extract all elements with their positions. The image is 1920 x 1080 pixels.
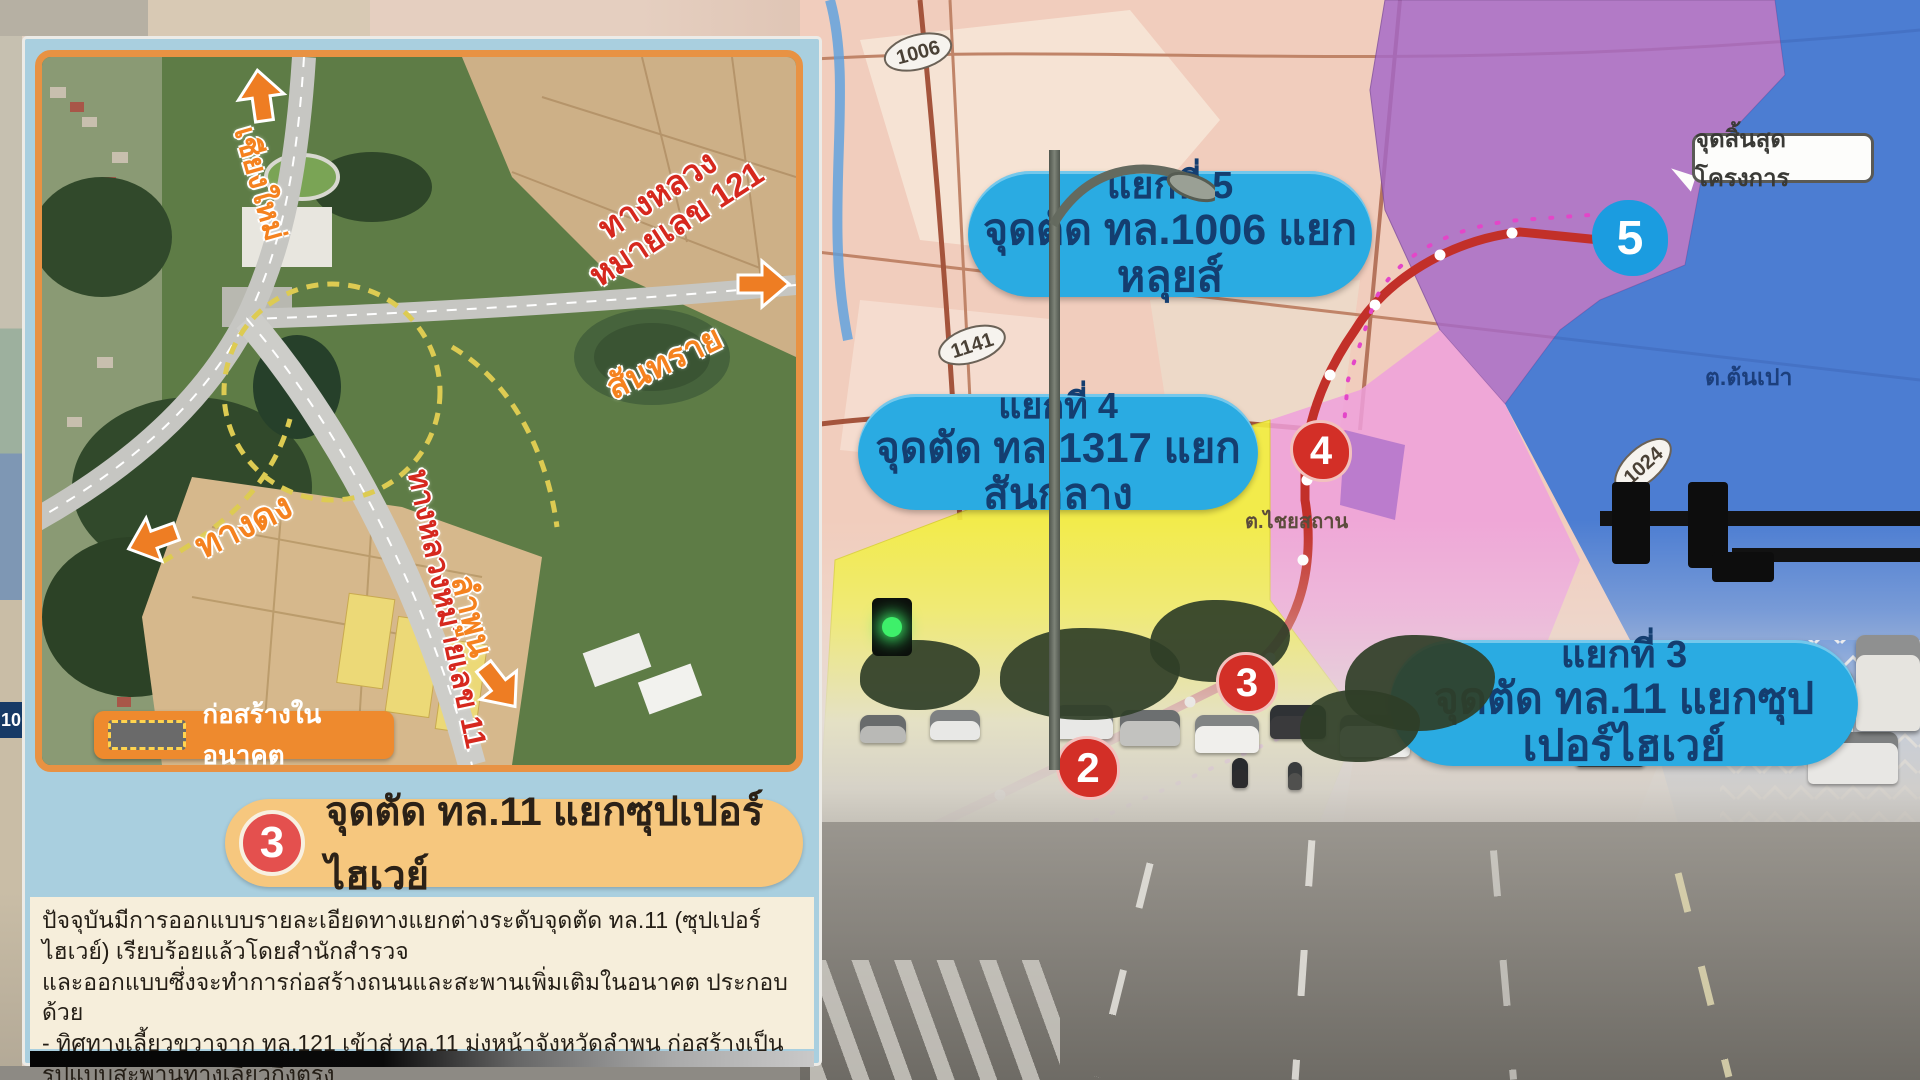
screenshot-root: 1006 1141 1024 ต.ต้นเปา ต.ไชยสถาน bbox=[0, 0, 1920, 1080]
marker-junction-4: 4 bbox=[1290, 420, 1352, 482]
project-inset-panel: เชียงใหม่ ทางหลวง หมายเลข 121 สันทราย ทา… bbox=[22, 36, 822, 1066]
description-line: และออกแบบซึ่งจะทำการก่อสร้างถนนและสะพานเ… bbox=[42, 967, 802, 1029]
arrow-up-chiangmai-icon bbox=[230, 64, 292, 129]
traffic-signal-head bbox=[1712, 552, 1774, 582]
crosswalk-stripes bbox=[810, 960, 1060, 1080]
aerial-interchange-photo: เชียงใหม่ ทางหลวง หมายเลข 121 สันทราย ทา… bbox=[35, 50, 803, 772]
callout-3-line1: แยกที่ 3 bbox=[1561, 636, 1688, 676]
arrow-right-sansai-icon bbox=[734, 257, 792, 311]
green-lamp-icon bbox=[882, 617, 902, 637]
legend-dashed-swatch-icon bbox=[108, 720, 186, 750]
traffic-photo bbox=[800, 520, 1920, 1080]
description-line: ปัจจุบันมีการออกแบบรายละเอียดทางแยกต่างร… bbox=[42, 905, 802, 967]
street-light-arm bbox=[1045, 140, 1215, 240]
project-end-label: จุดสิ้นสุดโครงการ bbox=[1692, 133, 1874, 183]
background-map-top-strip bbox=[0, 0, 822, 36]
marker-junction-2: 2 bbox=[1056, 736, 1120, 800]
motorbike bbox=[1232, 758, 1248, 788]
panel-bottom-bar bbox=[30, 1051, 814, 1067]
junction-number-badge: 3 bbox=[239, 810, 305, 876]
marker-junction-5: 5 bbox=[1592, 200, 1668, 276]
traffic-signal-head bbox=[1612, 482, 1650, 564]
junction-title: 3 จุดตัด ทล.11 แยกซุปเปอร์ไฮเวย์ bbox=[225, 799, 803, 887]
marker-junction-3: 3 bbox=[1216, 652, 1278, 714]
area-label-tonpao: ต.ต้นเปา bbox=[1705, 364, 1792, 390]
car bbox=[1120, 710, 1180, 746]
background-map-left-strip bbox=[0, 36, 22, 1080]
street-light-pole bbox=[1049, 150, 1060, 770]
traffic-signal-green bbox=[872, 598, 912, 656]
truck bbox=[1856, 635, 1920, 731]
car bbox=[1195, 715, 1259, 753]
edge-road-sign: 10 bbox=[0, 702, 22, 738]
car bbox=[930, 710, 980, 740]
motorbike bbox=[1288, 762, 1302, 790]
legend-future-construction: ก่อสร้างในอนาคต bbox=[94, 711, 394, 759]
project-description: ปัจจุบันมีการออกแบบรายละเอียดทางแยกต่างร… bbox=[30, 897, 814, 1049]
legend-label: ก่อสร้างในอนาคต bbox=[202, 694, 380, 772]
car bbox=[860, 715, 906, 743]
junction-title-text: จุดตัด ทล.11 แยกซุปเปอร์ไฮเวย์ bbox=[325, 779, 803, 907]
